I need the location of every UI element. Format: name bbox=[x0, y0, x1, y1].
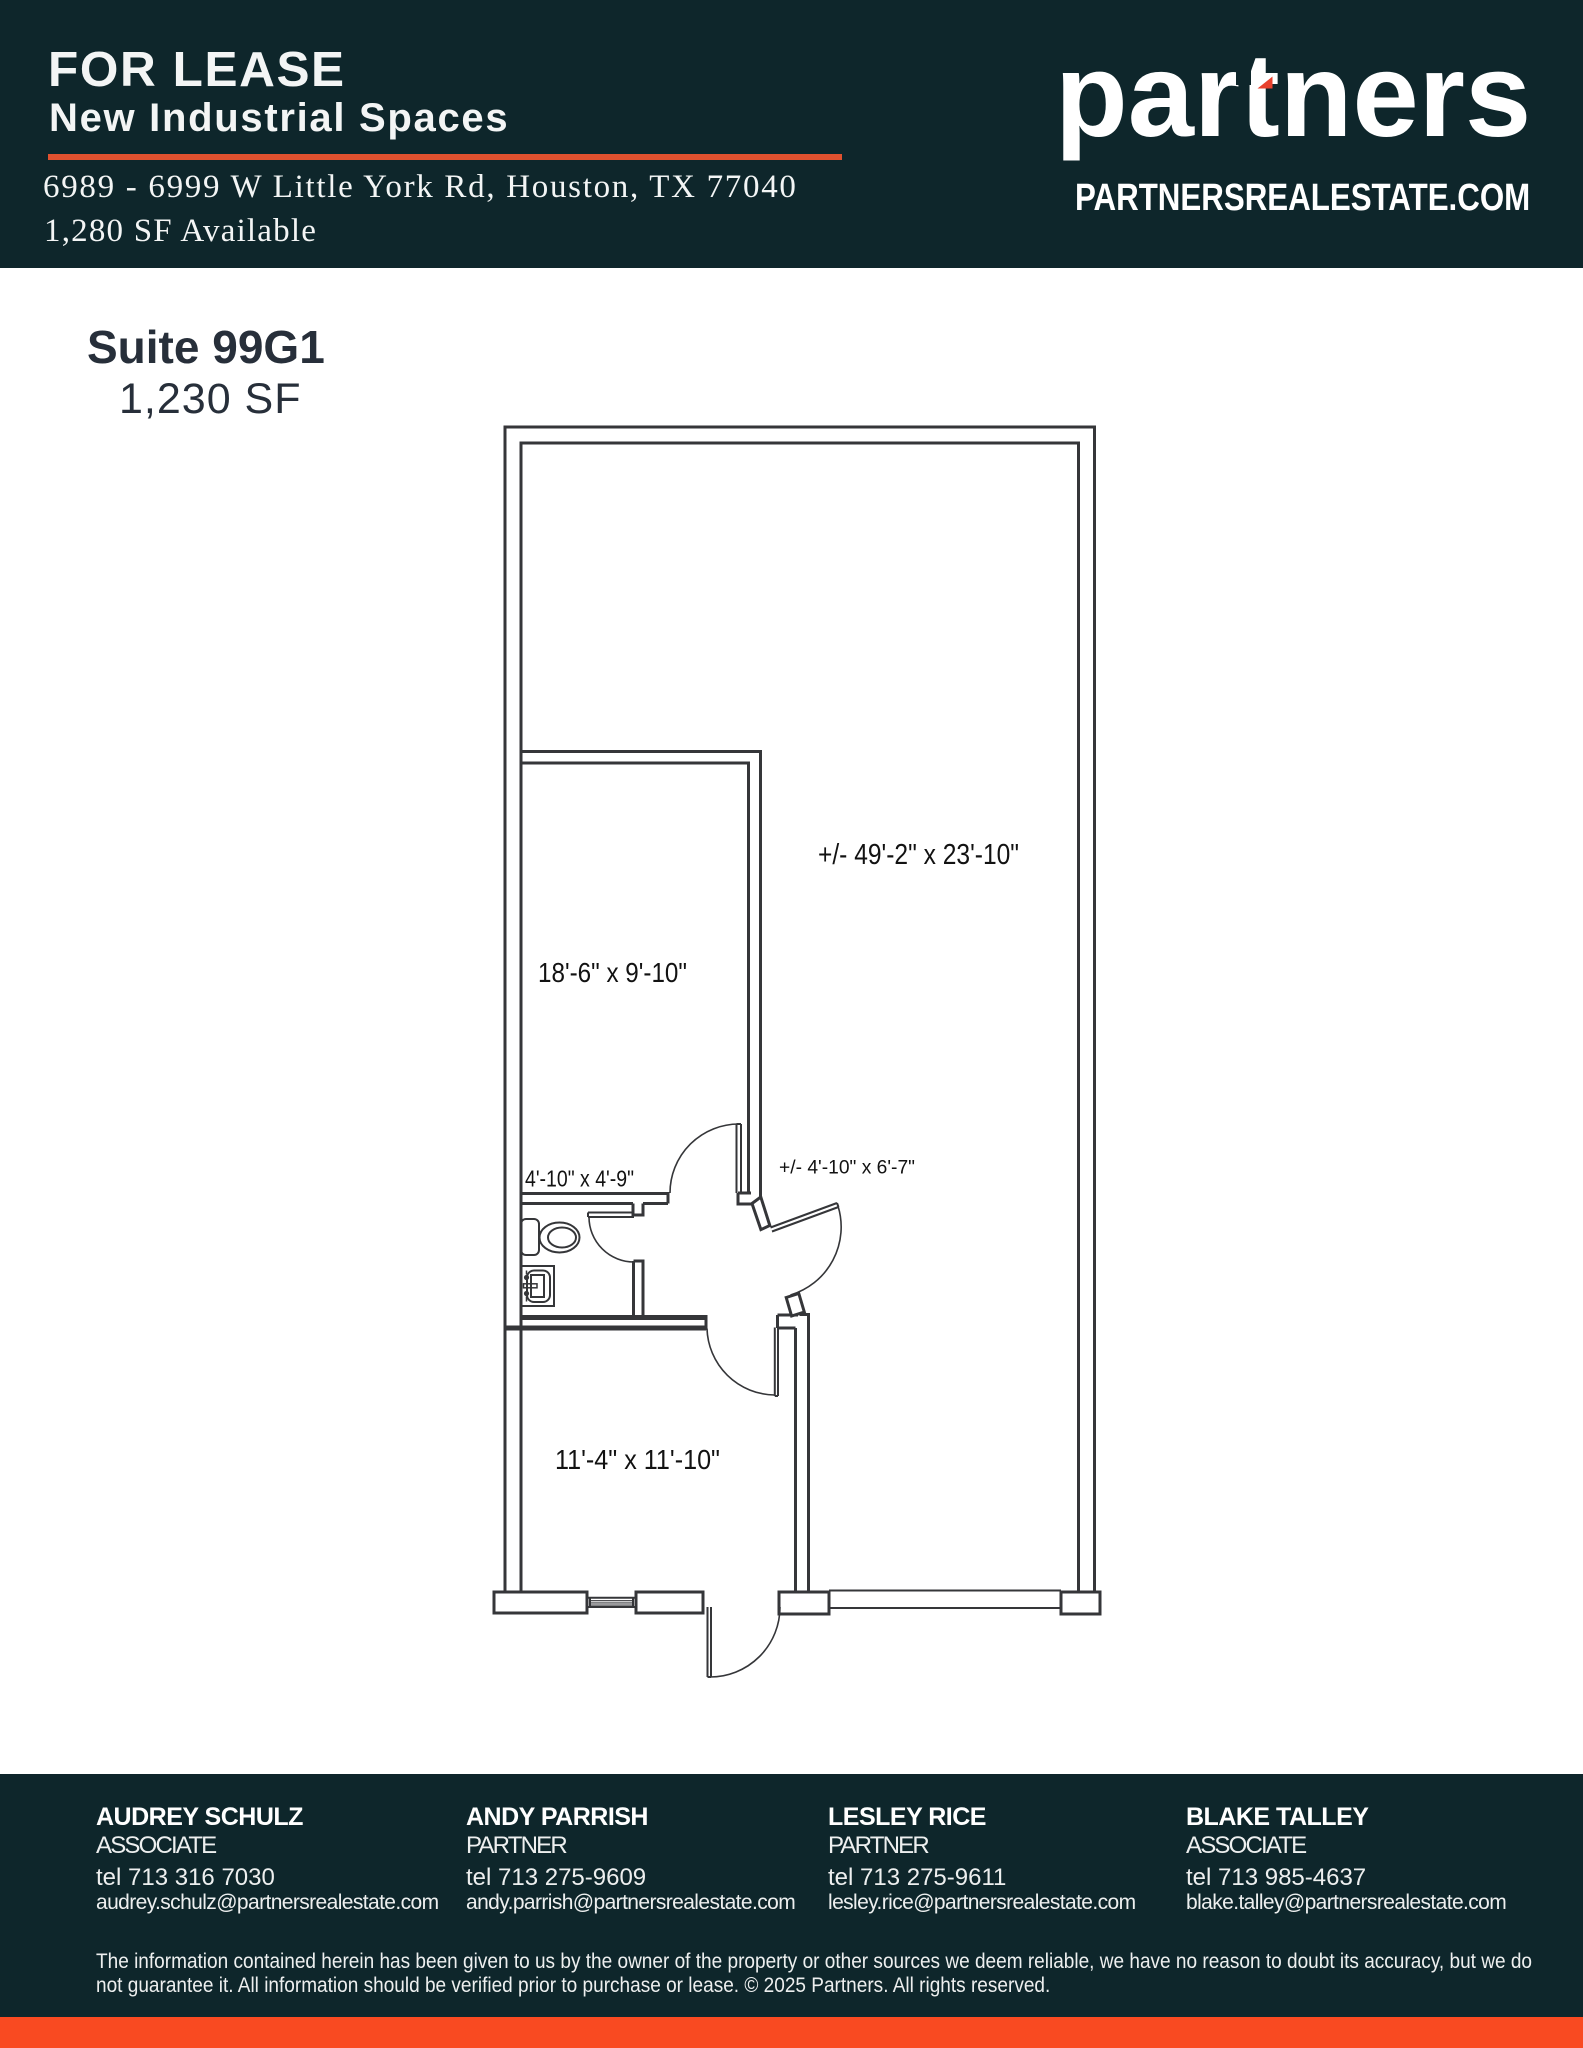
svg-text:18'-6" x 9'-10": 18'-6" x 9'-10" bbox=[538, 957, 687, 988]
svg-text:+/- 49'-2" x 23'-10": +/- 49'-2" x 23'-10" bbox=[818, 839, 1019, 871]
svg-text:+/- 4'-10" x 6'-7": +/- 4'-10" x 6'-7" bbox=[779, 1157, 915, 1179]
svg-text:11'-4" x 11'-10": 11'-4" x 11'-10" bbox=[555, 1444, 720, 1475]
svg-text:4'-10" x 4'-9": 4'-10" x 4'-9" bbox=[525, 1166, 634, 1192]
